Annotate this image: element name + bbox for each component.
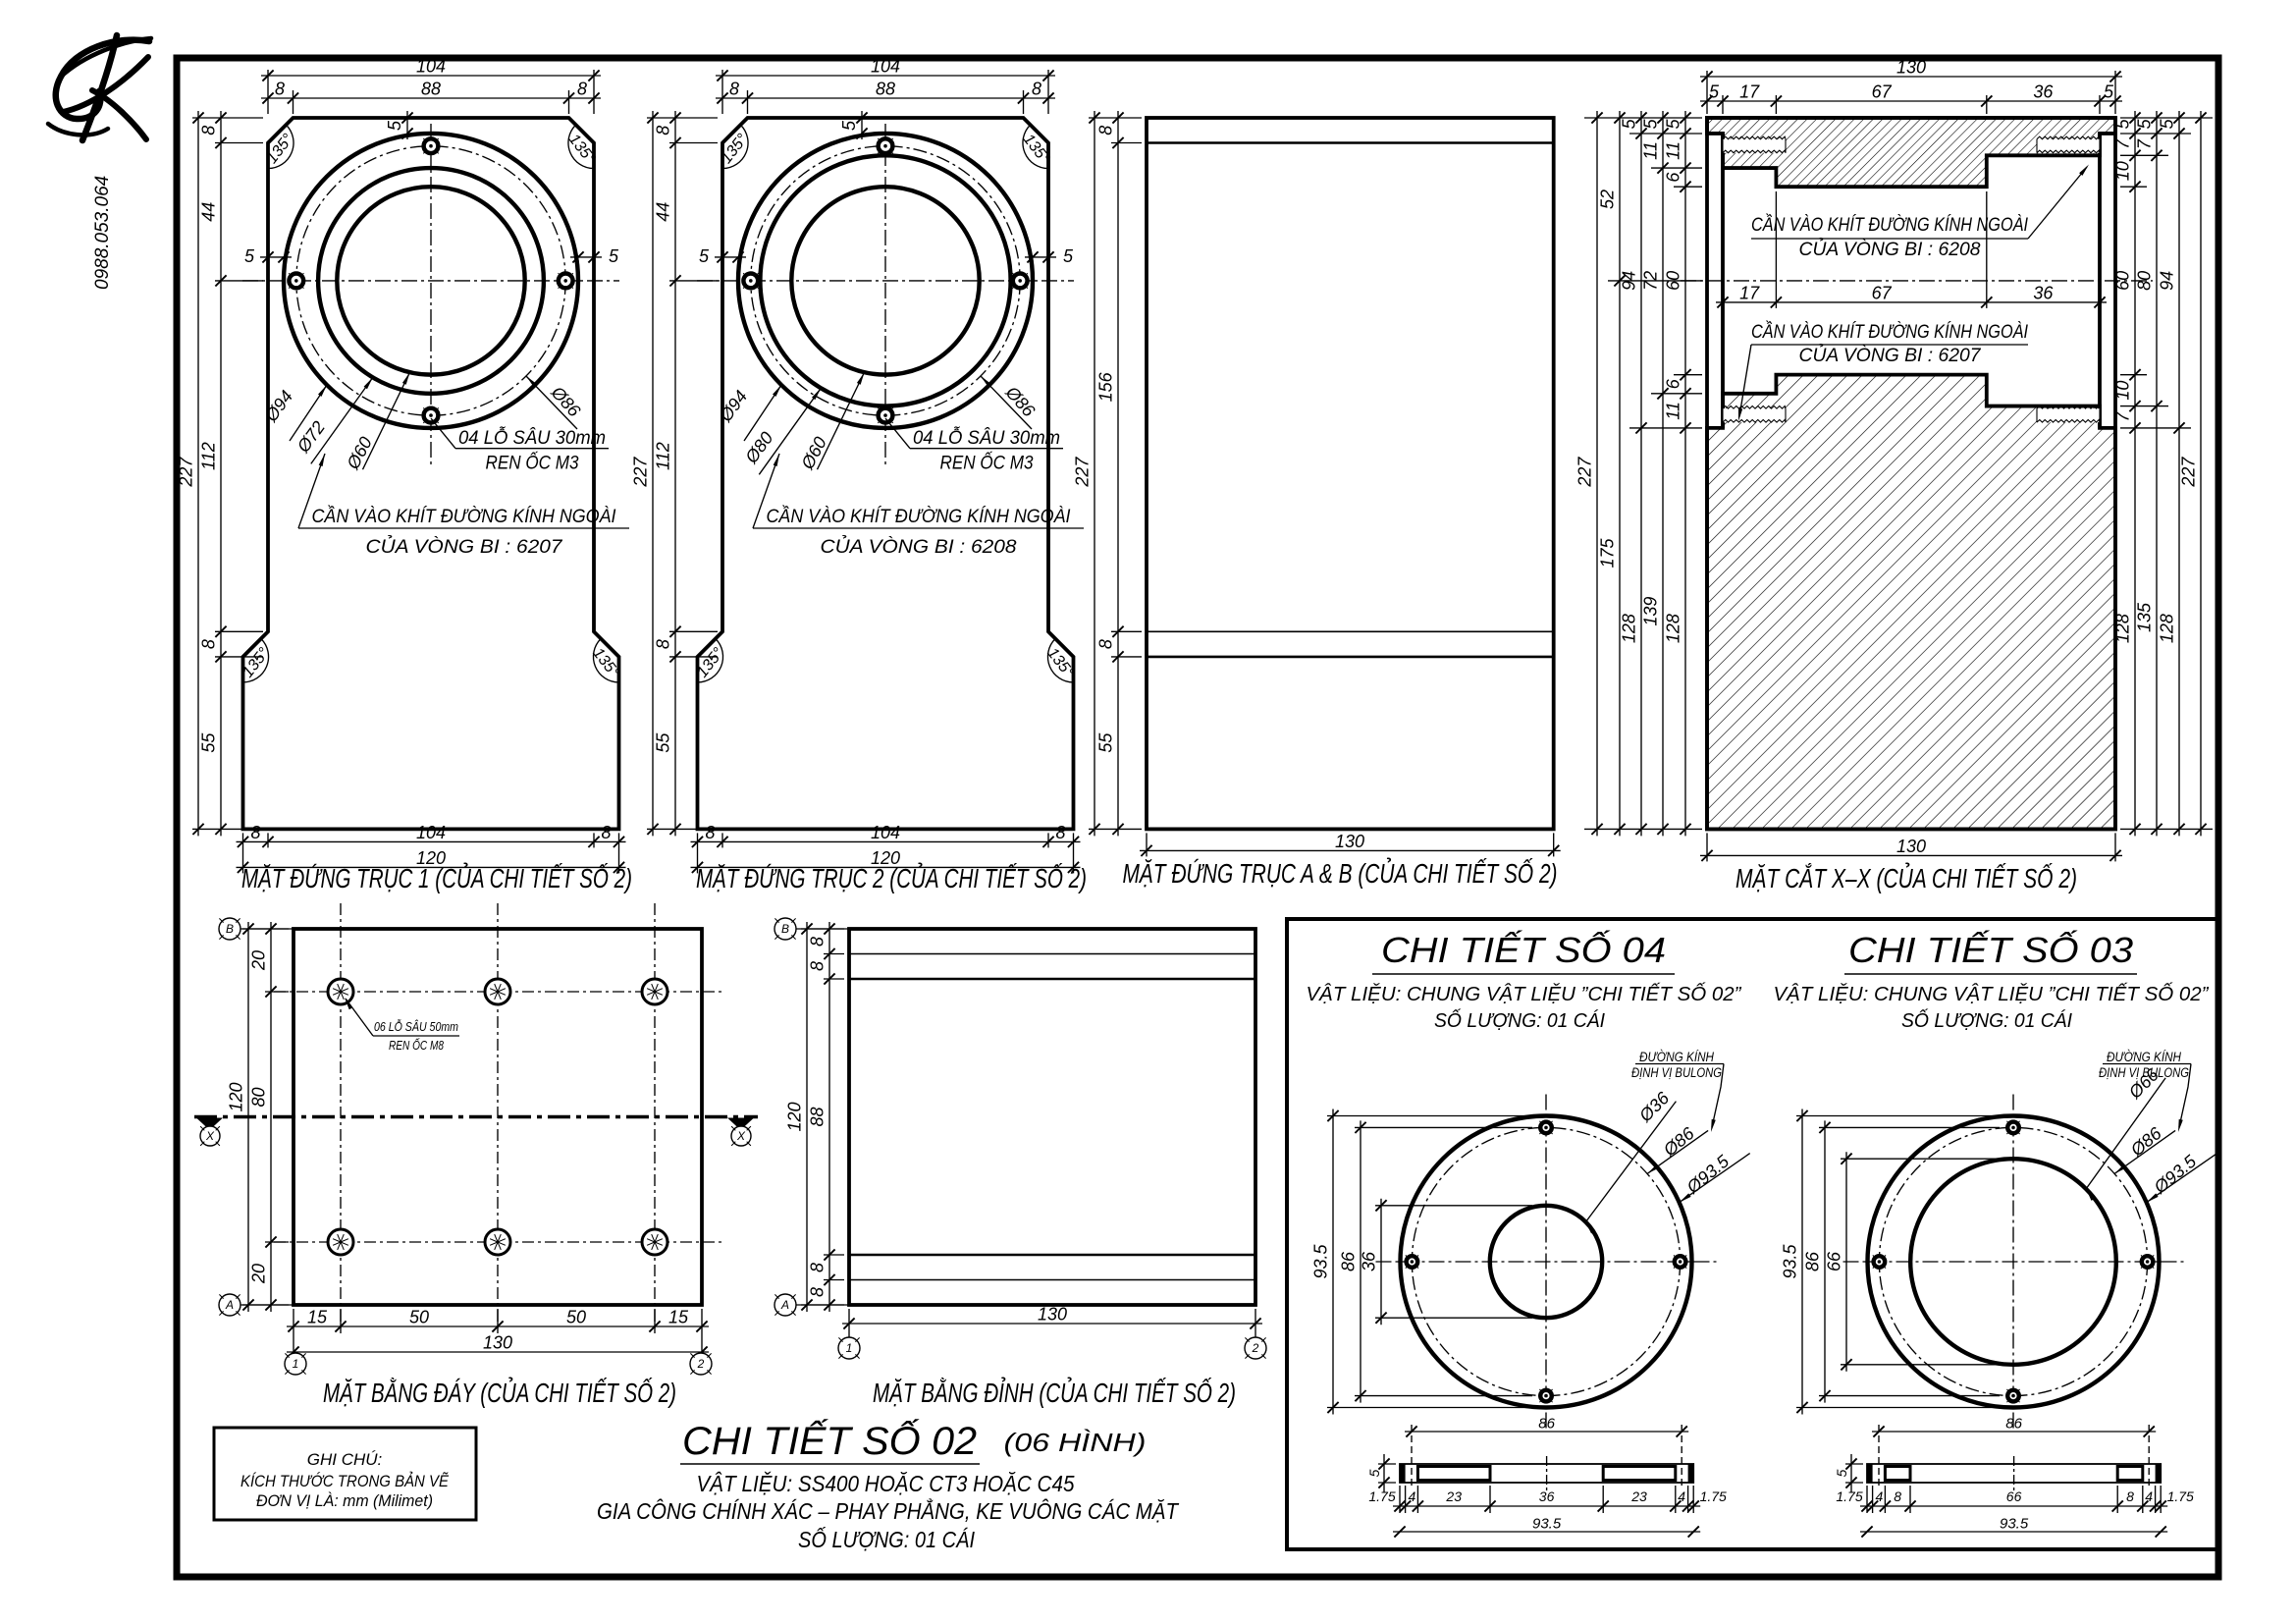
svg-text:104: 104 [871,823,900,842]
svg-text:130: 130 [1896,58,1926,78]
svg-text:(06 HÌNH): (06 HÌNH) [1004,1428,1147,1457]
svg-text:A: A [225,1298,234,1312]
svg-text:8: 8 [250,823,260,842]
svg-text:4: 4 [1876,1488,1884,1504]
svg-text:11: 11 [1664,402,1683,420]
svg-text:MẶT ĐỨNG TRỤC A & B (CỦA CHI T: MẶT ĐỨNG TRỤC A & B (CỦA CHI TIẾT SỐ 2) [1123,856,1558,889]
svg-text:MẶT CẮT X–X (CỦA CHI TIẾT SỐ 2: MẶT CẮT X–X (CỦA CHI TIẾT SỐ 2) [1735,861,2077,893]
svg-text:ĐƯỜNG KÍNH: ĐƯỜNG KÍNH [1639,1050,1714,1064]
svg-text:B: B [226,922,234,936]
svg-text:93.5: 93.5 [1532,1516,1562,1533]
svg-text:94: 94 [2158,271,2177,291]
svg-text:1.75: 1.75 [1368,1488,1395,1504]
svg-text:X: X [205,1129,215,1143]
svg-text:CỦA VÒNG BI : 6208: CỦA VÒNG BI : 6208 [821,536,1017,558]
svg-text:CHI TIẾT SỐ 04: CHI TIẾT SỐ 04 [1381,929,1666,970]
svg-text:5: 5 [839,120,859,131]
svg-text:5: 5 [1834,1469,1849,1477]
svg-text:156: 156 [1096,371,1116,402]
svg-text:CỦA VÒNG BI : 6208: CỦA VÒNG BI : 6208 [1799,239,1981,260]
svg-text:A: A [780,1298,789,1312]
svg-text:128: 128 [1620,614,1639,643]
svg-text:80: 80 [2135,271,2155,291]
svg-text:175: 175 [1598,538,1618,568]
svg-text:227: 227 [1575,457,1595,488]
svg-text:8: 8 [199,639,219,649]
svg-text:KÍCH THƯỚC TRONG BẢN VẼ: KÍCH THƯỚC TRONG BẢN VẼ [240,1471,450,1490]
svg-text:88: 88 [876,80,895,99]
svg-text:CẦN VÀO KHÍT ĐƯỜNG KÍNH NGOÀI: CẦN VÀO KHÍT ĐƯỜNG KÍNH NGOÀI [767,506,1072,527]
svg-text:23: 23 [1630,1488,1647,1504]
svg-text:227: 227 [2179,457,2199,488]
svg-text:CHI TIẾT SỐ 02: CHI TIẾT SỐ 02 [682,1418,977,1463]
svg-text:5: 5 [1366,1469,1382,1477]
svg-text:11: 11 [1664,141,1683,160]
svg-text:MẶT BẰNG ĐÁY (CỦA CHI TIẾT SỐ: MẶT BẰNG ĐÁY (CỦA CHI TIẾT SỐ 2) [323,1376,676,1408]
svg-text:104: 104 [871,57,900,77]
svg-text:5: 5 [609,246,619,266]
svg-text:120: 120 [227,1082,246,1111]
svg-text:88: 88 [808,1107,828,1126]
svg-text:23: 23 [1445,1488,1462,1504]
svg-text:5: 5 [385,120,404,131]
svg-text:7: 7 [2135,138,2155,149]
svg-text:8: 8 [601,823,611,842]
svg-text:ĐỊNH VỊ BULONG: ĐỊNH VỊ BULONG [1631,1065,1722,1080]
svg-text:130: 130 [1335,832,1364,851]
svg-text:227: 227 [177,457,196,488]
svg-text:8: 8 [275,80,285,99]
svg-text:8: 8 [729,80,739,99]
svg-text:44: 44 [654,202,673,222]
svg-text:36: 36 [2033,283,2054,302]
svg-text:50: 50 [409,1308,429,1327]
svg-text:8: 8 [1096,126,1116,135]
svg-text:5: 5 [244,246,255,266]
svg-text:8: 8 [2126,1488,2134,1504]
svg-text:5: 5 [2113,118,2133,129]
svg-text:4: 4 [1409,1488,1416,1504]
svg-text:MẶT BẰNG ĐỈNH (CỦA CHI TIẾT SỐ: MẶT BẰNG ĐỈNH (CỦA CHI TIẾT SỐ 2) [873,1376,1236,1408]
svg-text:6: 6 [1664,172,1683,183]
svg-text:8: 8 [808,937,828,947]
svg-text:MẶT ĐỨNG TRỤC 2 (CỦA CHI TIẾT: MẶT ĐỨNG TRỤC 2 (CỦA CHI TIẾT SỐ 2) [696,861,1087,893]
svg-text:130: 130 [483,1333,512,1353]
svg-text:128: 128 [2158,614,2177,643]
svg-text:5: 5 [2104,82,2114,102]
svg-text:CẦN VÀO KHÍT ĐƯỜNG KÍNH NGOÀI: CẦN VÀO KHÍT ĐƯỜNG KÍNH NGOÀI [312,506,617,527]
svg-text:52: 52 [1598,189,1618,209]
svg-text:44: 44 [199,202,219,222]
svg-text:128: 128 [2113,614,2133,643]
svg-text:REN ỐC M3: REN ỐC M3 [940,452,1034,473]
svg-text:8: 8 [654,639,673,649]
svg-text:60: 60 [2113,271,2133,291]
svg-text:ĐƯỜNG KÍNH: ĐƯỜNG KÍNH [2107,1050,2181,1064]
svg-text:86: 86 [1803,1251,1823,1271]
svg-text:5: 5 [1709,82,1720,102]
svg-text:227: 227 [631,457,651,488]
svg-text:5: 5 [699,246,710,266]
svg-text:SỐ LƯỢNG: 01 CÁI: SỐ LƯỢNG: 01 CÁI [1901,1008,2072,1032]
svg-text:8: 8 [808,961,828,971]
svg-text:11: 11 [1641,141,1661,160]
svg-text:X: X [736,1129,746,1143]
svg-text:120: 120 [785,1102,805,1131]
svg-text:8: 8 [1055,823,1065,842]
svg-text:2: 2 [1252,1341,1259,1355]
svg-text:8: 8 [577,80,587,99]
svg-text:ĐỊNH VỊ BULONG: ĐỊNH VỊ BULONG [2099,1065,2189,1080]
svg-text:86: 86 [1538,1416,1555,1433]
svg-text:04 LỖ SÂU 30mm: 04 LỖ SÂU 30mm [458,427,606,449]
svg-text:GIA CÔNG CHÍNH XÁC – PHAY PHẲN: GIA CÔNG CHÍNH XÁC – PHAY PHẲNG, KE VUÔN… [597,1497,1180,1524]
svg-text:112: 112 [199,442,219,470]
svg-text:55: 55 [1096,732,1116,753]
svg-text:VẬT LIỆU: CHUNG VẬT LIỆU ”CHI: VẬT LIỆU: CHUNG VẬT LIỆU ”CHI TIẾT SỐ 02… [1307,982,1742,1005]
svg-text:8: 8 [1096,639,1116,649]
svg-text:2: 2 [697,1357,705,1371]
svg-text:GHI CHÚ:: GHI CHÚ: [307,1450,383,1469]
svg-text:55: 55 [199,732,219,753]
svg-text:4: 4 [2145,1488,2153,1504]
svg-text:1: 1 [293,1357,299,1371]
svg-text:93.5: 93.5 [1781,1244,1800,1279]
svg-text:55: 55 [654,732,673,753]
svg-text:8: 8 [808,1287,828,1297]
svg-text:72: 72 [1641,271,1661,291]
svg-text:36: 36 [2033,82,2054,102]
svg-text:8: 8 [199,126,219,135]
svg-text:112: 112 [654,442,673,470]
svg-text:5: 5 [2135,118,2155,129]
svg-text:50: 50 [566,1308,586,1327]
svg-text:20: 20 [249,950,269,971]
svg-text:67: 67 [1872,283,1893,302]
svg-text:6: 6 [1664,378,1683,389]
svg-text:REN ỐC M8: REN ỐC M8 [389,1038,445,1053]
svg-text:66: 66 [2006,1488,2022,1504]
svg-text:5: 5 [1664,118,1683,129]
svg-text:5: 5 [1620,118,1639,129]
svg-text:36: 36 [1360,1251,1379,1271]
svg-text:10: 10 [2113,161,2133,181]
svg-text:1.75: 1.75 [2167,1488,2194,1504]
svg-text:15: 15 [668,1308,689,1327]
svg-text:8: 8 [1032,80,1041,99]
svg-text:7: 7 [2113,138,2133,149]
svg-text:88: 88 [421,80,441,99]
svg-text:17: 17 [1739,82,1760,102]
svg-text:80: 80 [249,1087,269,1107]
svg-text:CHI TIẾT SỐ 03: CHI TIẾT SỐ 03 [1848,929,2133,970]
svg-text:104: 104 [416,823,446,842]
svg-text:8: 8 [654,126,673,135]
svg-text:5: 5 [2158,118,2177,129]
svg-text:REN ỐC M3: REN ỐC M3 [486,452,579,473]
svg-text:20: 20 [249,1264,269,1284]
svg-text:66: 66 [1825,1251,1844,1271]
svg-text:04 LỖ SÂU 30mm: 04 LỖ SÂU 30mm [913,427,1060,449]
svg-text:B: B [781,922,789,936]
svg-text:MẶT ĐỨNG TRỤC 1 (CỦA CHI TIẾT: MẶT ĐỨNG TRỤC 1 (CỦA CHI TIẾT SỐ 2) [241,861,632,893]
svg-text:135: 135 [2135,602,2155,632]
svg-text:86: 86 [1339,1251,1359,1271]
svg-text:60: 60 [1664,271,1683,291]
svg-text:94: 94 [1620,271,1639,291]
svg-text:86: 86 [2005,1416,2022,1433]
svg-text:5: 5 [1063,246,1074,266]
svg-text:130: 130 [1038,1305,1067,1325]
svg-text:17: 17 [1739,283,1760,302]
svg-text:0988.053.064: 0988.053.064 [92,176,113,290]
svg-text:8: 8 [1894,1488,1901,1504]
svg-text:SỐ LƯỢNG: 01 CÁI: SỐ LƯỢNG: 01 CÁI [1434,1008,1605,1032]
svg-text:8: 8 [705,823,715,842]
svg-text:CẦN VÀO KHÍT ĐƯỜNG KÍNH NGOÀI: CẦN VÀO KHÍT ĐƯỜNG KÍNH NGOÀI [1751,321,2029,343]
svg-text:15: 15 [307,1308,328,1327]
svg-text:128: 128 [1664,614,1683,643]
svg-text:227: 227 [1073,457,1093,488]
svg-text:5: 5 [1641,118,1661,129]
svg-text:ĐƠN VỊ LÀ: mm (Milimet): ĐƠN VỊ LÀ: mm (Milimet) [256,1491,433,1510]
svg-text:06 LỖ SÂU 50mm: 06 LỖ SÂU 50mm [374,1019,458,1034]
svg-text:CẦN VÀO KHÍT ĐƯỜNG KÍNH NGOÀI: CẦN VÀO KHÍT ĐƯỜNG KÍNH NGOÀI [1751,214,2029,236]
svg-text:1: 1 [846,1341,853,1355]
svg-text:CỦA VÒNG BI : 6207: CỦA VÒNG BI : 6207 [1799,345,1982,366]
svg-text:93.5: 93.5 [1311,1244,1331,1279]
svg-text:1.75: 1.75 [1700,1488,1727,1504]
svg-text:VẬT LIỆU: SS400 HOẶC CT3 HOẶC: VẬT LIỆU: SS400 HOẶC CT3 HOẶC C45 [697,1471,1075,1496]
svg-text:7: 7 [2113,411,2133,422]
svg-text:8: 8 [808,1263,828,1272]
svg-text:1.75: 1.75 [1836,1488,1862,1504]
svg-text:130: 130 [1896,837,1926,856]
svg-text:VẬT LIỆU: CHUNG VẬT LIỆU ”CHI: VẬT LIỆU: CHUNG VẬT LIỆU ”CHI TIẾT SỐ 02… [1774,982,2210,1005]
svg-text:139: 139 [1641,597,1661,626]
svg-text:104: 104 [416,57,446,77]
svg-text:67: 67 [1872,82,1893,102]
svg-text:SỐ LƯỢNG: 01 CÁI: SỐ LƯỢNG: 01 CÁI [798,1526,976,1552]
svg-text:10: 10 [2113,381,2133,401]
svg-text:4: 4 [1678,1488,1685,1504]
svg-text:CỦA VÒNG BI : 6207: CỦA VÒNG BI : 6207 [366,536,564,558]
svg-text:93.5: 93.5 [2000,1516,2029,1533]
svg-text:36: 36 [1539,1488,1555,1504]
